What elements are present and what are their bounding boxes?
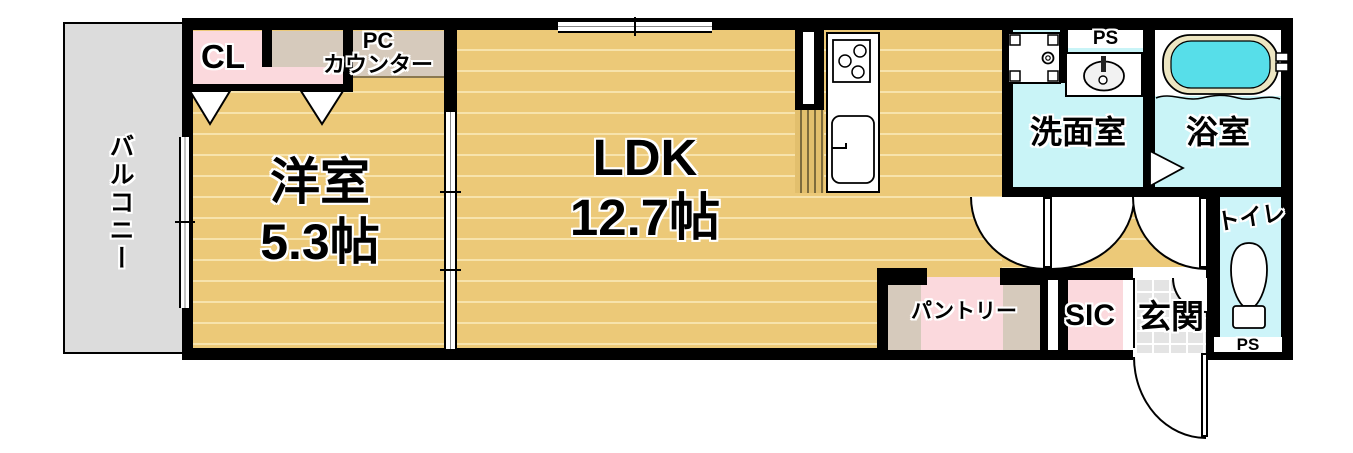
pan-drain	[1043, 53, 1054, 64]
stove-burner	[839, 55, 851, 67]
bathroom-label: 浴室	[1157, 114, 1279, 151]
pan-corner	[1010, 71, 1020, 81]
pan-corner	[1010, 35, 1020, 45]
pan-corner	[1048, 71, 1058, 81]
folding-closet-door-icon	[301, 91, 343, 124]
pipe-space-top-label: PS	[1068, 28, 1143, 50]
pc-counter-line2: カウンター	[316, 53, 440, 77]
floorplan: バルコニー CL PC カウンター 洋室 5.3帖 LDK 12.7帖 洗面室 …	[0, 0, 1353, 453]
sic-label: SIC	[1046, 299, 1134, 334]
pc-counter-line1: PC	[316, 29, 440, 53]
basin-drain	[1099, 76, 1107, 84]
western-room-area: 5.3帖	[215, 212, 425, 272]
toilet-bowl-icon	[1231, 243, 1267, 306]
folding-closet-door-icon	[190, 91, 230, 124]
basin-faucet	[1101, 56, 1106, 72]
entrance-label: 玄関	[1132, 298, 1210, 336]
tub-faucet	[1276, 63, 1288, 71]
western-room-name: 洋室	[215, 152, 425, 212]
bath-door-triangle-icon	[1150, 151, 1183, 186]
ldk-label: LDK 12.7帖	[515, 128, 775, 248]
stove-burner	[854, 45, 866, 57]
pantry-label: パントリー	[888, 300, 1040, 324]
balcony-label: バルコニー	[105, 118, 134, 288]
stove-burner	[852, 66, 864, 78]
pan-corner	[1048, 35, 1058, 45]
tub-faucet	[1276, 53, 1288, 61]
pipe-space-bottom-label: PS	[1214, 335, 1282, 355]
washroom-label: 洗面室	[1013, 114, 1143, 151]
closet-label: CL	[192, 38, 254, 76]
bath-floor-wave	[1156, 95, 1280, 99]
toilet-tank-icon	[1233, 306, 1265, 328]
ldk-name: LDK	[515, 128, 775, 188]
ldk-area: 12.7帖	[515, 188, 775, 248]
bathtub-water	[1171, 41, 1270, 88]
kitchen-sink-icon	[832, 116, 874, 183]
western-room-label: 洋室 5.3帖	[215, 152, 425, 272]
pc-counter-label: PC カウンター	[316, 29, 440, 77]
